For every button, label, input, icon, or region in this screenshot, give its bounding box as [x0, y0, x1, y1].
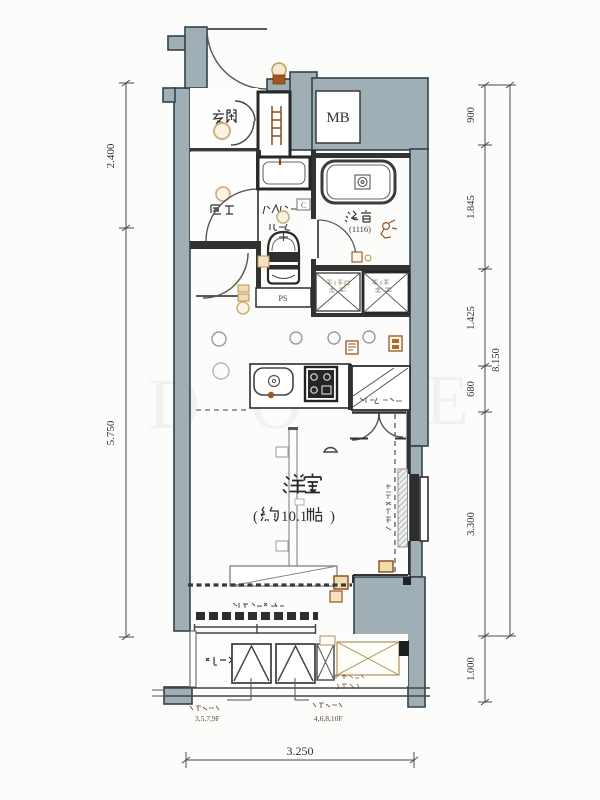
- svg-text:1.000: 1.000: [466, 657, 477, 681]
- svg-text:(1116): (1116): [349, 224, 371, 234]
- svg-text:3.300: 3.300: [466, 512, 477, 536]
- svg-text:1.845: 1.845: [466, 195, 477, 219]
- svg-text:3,5,7,9F: 3,5,7,9F: [195, 714, 220, 723]
- svg-text:): ): [330, 509, 335, 525]
- svg-text:C: C: [301, 201, 306, 210]
- svg-text:2.400: 2.400: [105, 143, 117, 168]
- svg-text:1.425: 1.425: [466, 306, 477, 330]
- svg-text:900: 900: [466, 107, 477, 123]
- svg-text:3.250: 3.250: [287, 744, 314, 758]
- svg-text:680: 680: [466, 381, 477, 397]
- svg-text:MB: MB: [326, 110, 349, 126]
- svg-text:(: (: [253, 509, 258, 525]
- svg-text:5.750: 5.750: [105, 420, 117, 445]
- svg-text:E: E: [425, 360, 469, 440]
- svg-text:PS: PS: [279, 294, 288, 303]
- svg-text:4,6,8,10F: 4,6,8,10F: [314, 714, 343, 723]
- svg-text:10.1: 10.1: [281, 509, 307, 525]
- svg-text:8.150: 8.150: [491, 348, 502, 372]
